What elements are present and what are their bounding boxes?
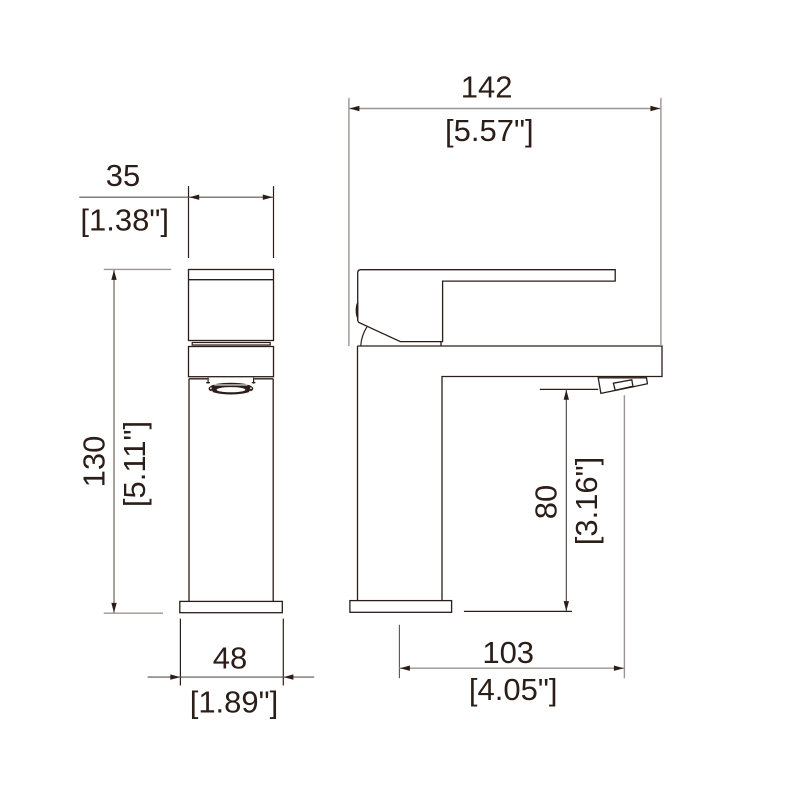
svg-text:[1.89"]: [1.89"] bbox=[190, 685, 279, 720]
svg-text:130: 130 bbox=[77, 436, 112, 488]
svg-text:103: 103 bbox=[482, 635, 534, 670]
svg-text:[1.38"]: [1.38"] bbox=[80, 202, 169, 237]
svg-text:142: 142 bbox=[461, 70, 513, 105]
svg-text:80: 80 bbox=[529, 485, 564, 519]
svg-text:[5.11"]: [5.11"] bbox=[117, 421, 152, 507]
svg-text:48: 48 bbox=[213, 640, 247, 675]
svg-text:35: 35 bbox=[106, 158, 140, 193]
svg-text:[5.57"]: [5.57"] bbox=[445, 113, 534, 148]
svg-text:[3.16"]: [3.16"] bbox=[569, 457, 604, 546]
svg-text:[4.05"]: [4.05"] bbox=[469, 672, 558, 707]
